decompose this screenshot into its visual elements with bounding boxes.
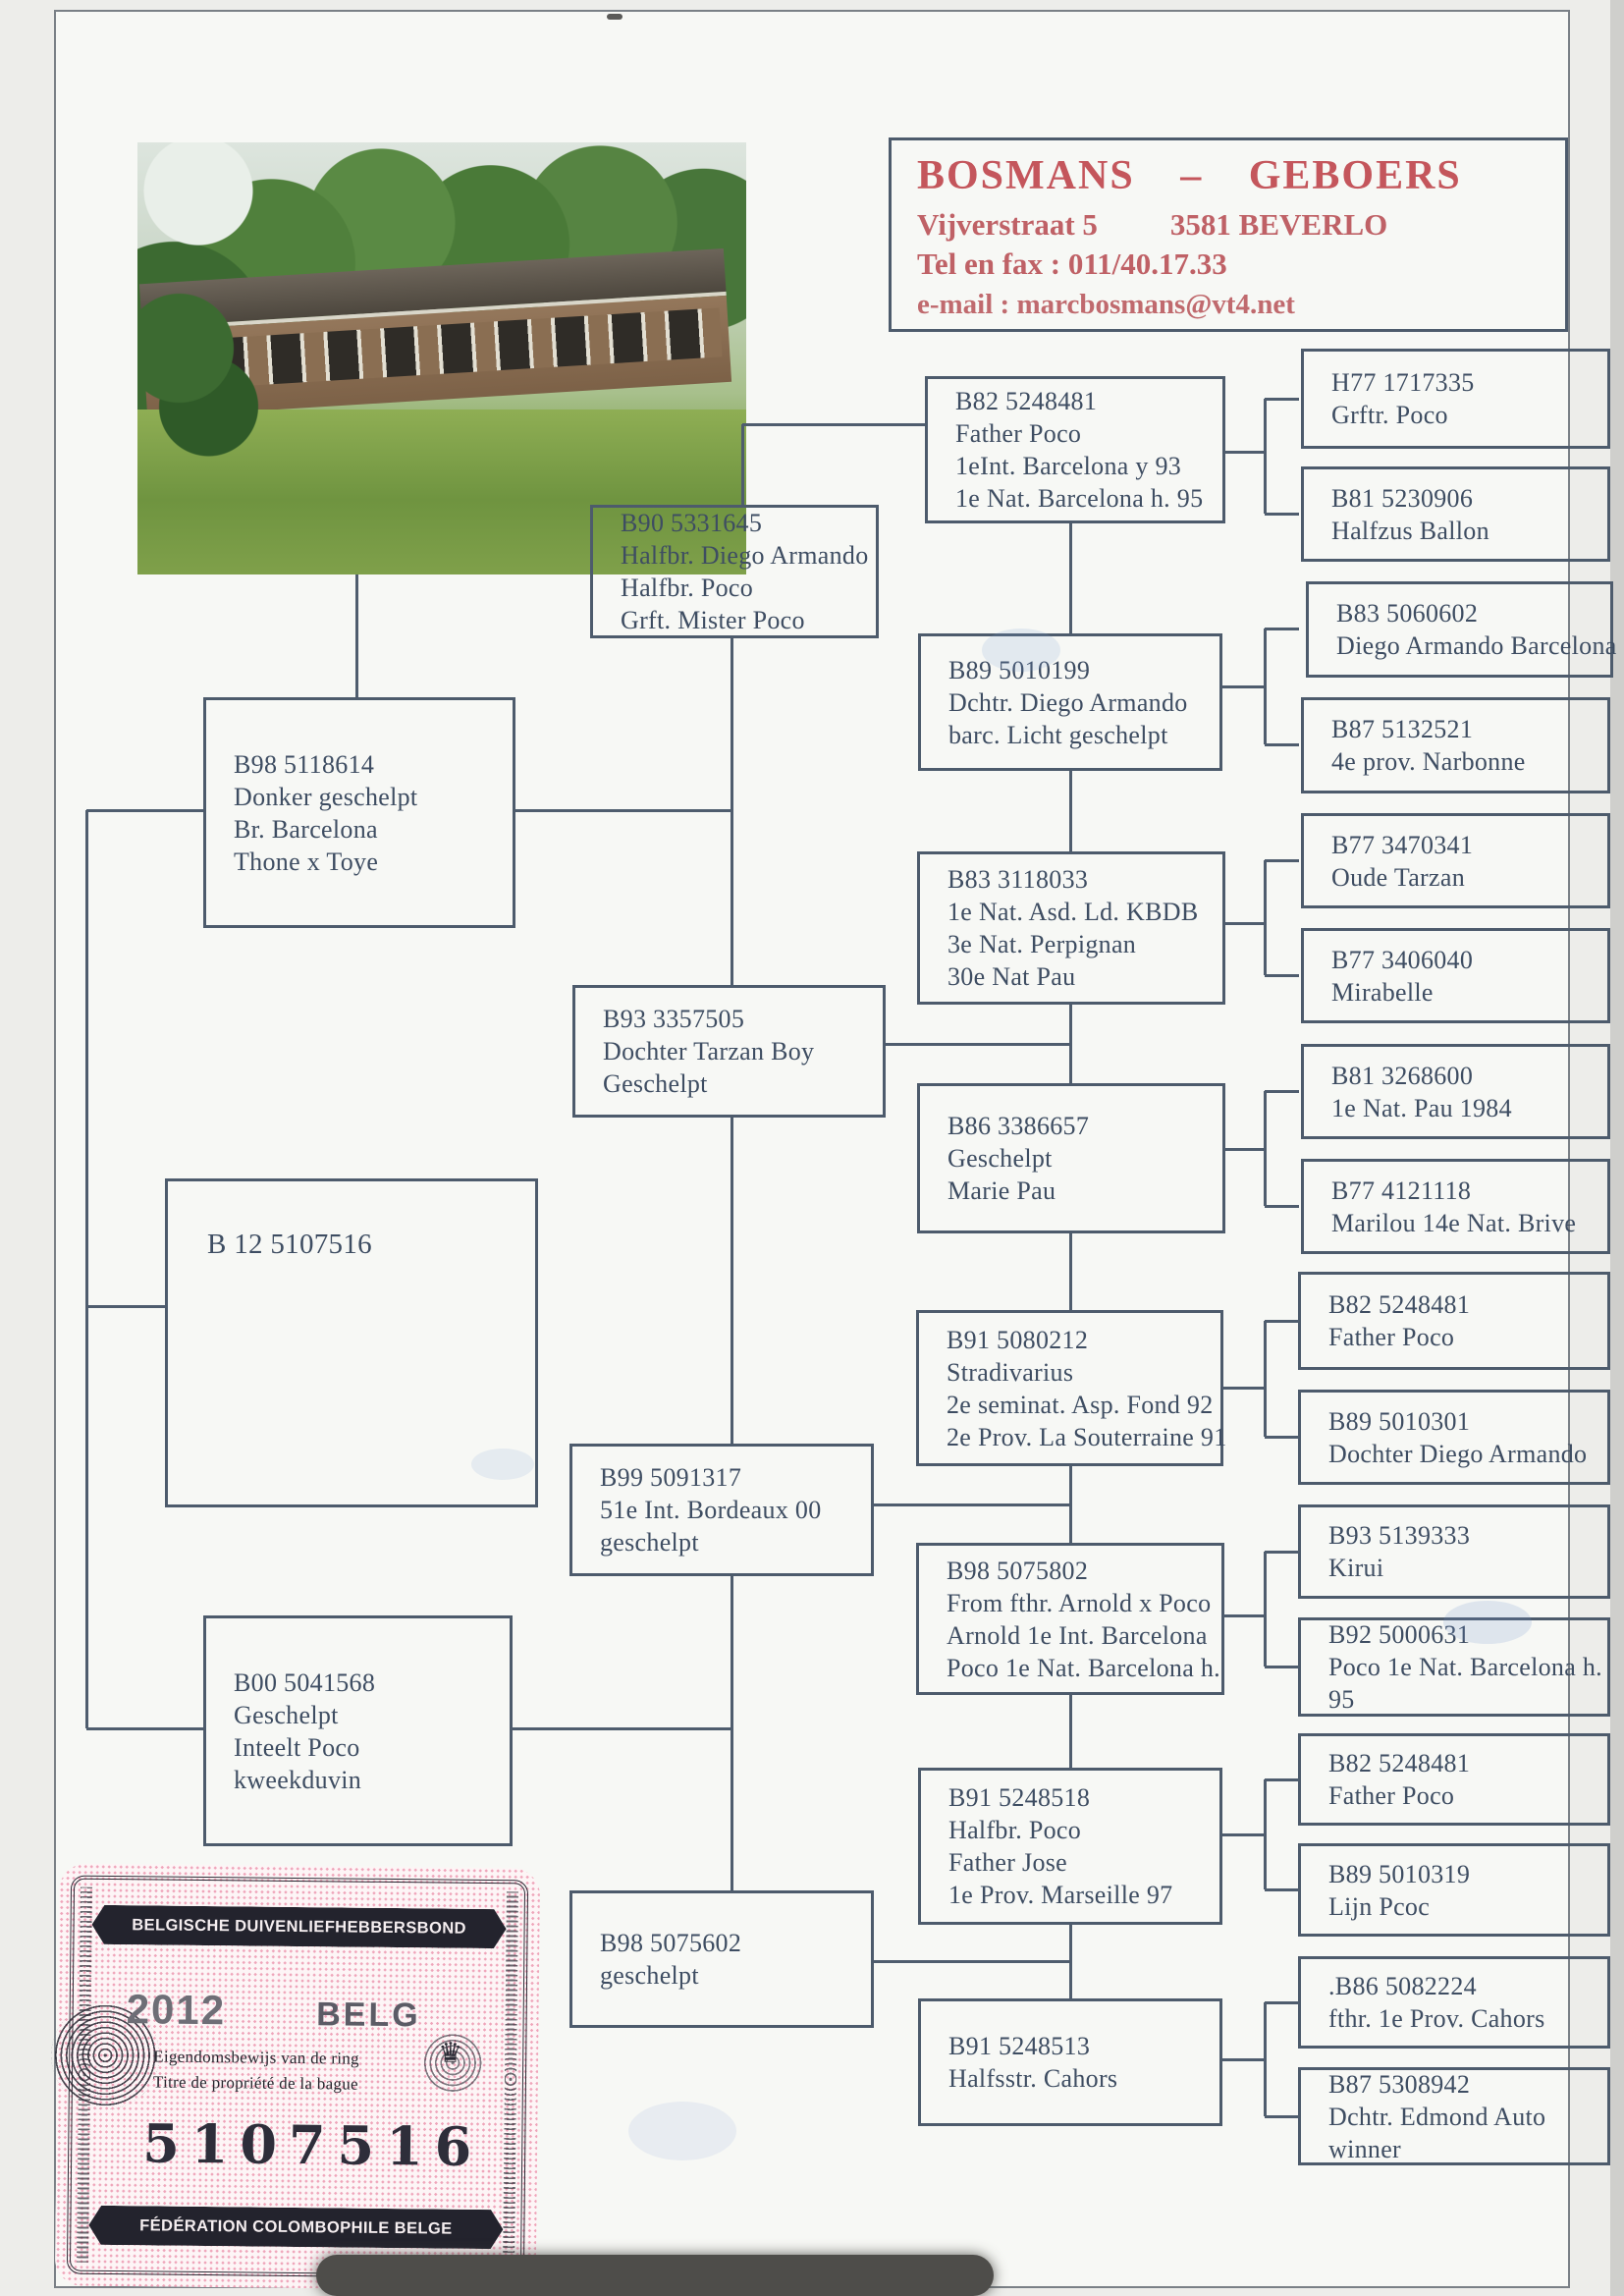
pedigree-box-b83-3118033: B83 31180331e Nat. Asd. Ld. KBDB3e Nat. … [917,851,1225,1005]
connector-line [731,1118,733,1444]
connector-line [1265,1205,1299,1208]
scanner-bed-shadow [316,2255,994,2296]
pedigree-box-b77-4121118: B77 4121118Marilou 14e Nat. Brive [1301,1159,1610,1254]
pedigree-box-line: 95 [1328,1683,1607,1716]
pedigree-box-line: Father Poco [1328,1779,1607,1812]
breeder-header: BOSMANS – GEBOERS Vijverstraat 53581 BEV… [889,137,1568,332]
stamp-line-dutch: Eigendomsbewijs van de ring [153,2047,359,2068]
pedigree-box-line: Marie Pau [947,1175,1222,1207]
pedigree-box-b91-5248518: B91 5248518Halfbr. PocoFather Jose1e Pro… [918,1768,1222,1925]
connector-line [741,424,744,505]
pedigree-box-line: Halfzus Ballon [1331,515,1607,547]
connector-line [1265,743,1299,746]
connector-line [874,1503,1070,1506]
pedigree-box-line: B81 5230906 [1331,482,1607,515]
connector-line [1222,2058,1265,2061]
pedigree-box-line: B89 5010301 [1328,1405,1607,1438]
pedigree-box-line: Thone x Toye [234,846,513,878]
connector-line [85,810,88,1728]
pedigree-box-line: Poco 1e Nat. Barcelona h. [1328,1651,1607,1683]
breeder-name: BOSMANS – GEBOERS [917,152,1565,199]
connector-line [1265,1666,1299,1668]
breeder-phone: Tel en fax : 011/40.17.33 [917,246,1565,282]
pedigree-box-line: Inteelt Poco [234,1731,510,1764]
pedigree-box-line: 3e Nat. Perpignan [947,928,1222,960]
connector-line [1265,628,1299,630]
pedigree-box-line: 1e Nat. Barcelona h. 95 [955,482,1222,515]
connector-line [1265,1090,1299,1093]
pedigree-box-b82-5248481-c: B82 5248481Father Poco [1298,1733,1610,1826]
connector-line [86,809,203,812]
pedigree-box-line: Grftr. Poco [1331,399,1607,431]
pedigree-box-line: Kirui [1328,1552,1607,1584]
breeder-street: Vijverstraat 5 [917,207,1098,242]
pedigree-box-b89-5010199: B89 5010199Dchtr. Diego Armandobarc. Lic… [918,633,1222,771]
pedigree-box-line: From fthr. Arnold x Poco [947,1587,1221,1619]
pedigree-box-b86-5082224: .B86 5082224fthr. 1e Prov. Cahors [1298,1956,1610,2049]
connector-line [1264,1552,1267,1667]
pedigree-box-line: Halfsstr. Cahors [948,2062,1219,2095]
pedigree-box-line: geschelpt [600,1526,871,1558]
connector-line [1264,399,1267,514]
connector-line [1224,922,1265,925]
pedigree-box-line: Geschelpt [947,1142,1222,1175]
connector-line [1265,513,1299,516]
pedigree-box-b93-5139333: B93 5139333Kirui [1298,1504,1610,1599]
stamp-bottom-banner-text: FÉDÉRATION COLOMBOPHILE BELGE [139,2216,453,2238]
pedigree-box-b92-5000631: B92 5000631Poco 1e Nat. Barcelona h.95 [1298,1617,1610,1717]
breeder-address: Vijverstraat 53581 BEVERLO [917,207,1565,243]
connector-line [1265,1320,1299,1323]
ownership-stamp: BELGISCHE DUIVENLIEFHEBBERSBOND 2012 BEL… [55,1863,540,2290]
connector-line [1265,974,1299,977]
pedigree-box-line: B83 5060602 [1336,597,1610,629]
pedigree-box-b82-5248481-b: B82 5248481Father Poco [1298,1272,1610,1370]
pedigree-box-line: 1e Nat. Pau 1984 [1331,1092,1607,1124]
pedigree-box-line: Father Poco [955,417,1222,450]
pedigree-box-line: geschelpt [600,1959,871,1992]
connector-line [1224,1148,1265,1151]
pedigree-box-line: B91 5080212 [947,1324,1220,1356]
pedigree-box-line: B98 5118614 [234,748,513,781]
stamp-bottom-banner: FÉDÉRATION COLOMBOPHILE BELGE [88,2206,503,2249]
connector-line [355,574,358,697]
pedigree-box-line: 2e Prov. La Souterraine 91 [947,1421,1220,1453]
connector-line [1265,859,1299,862]
pedigree-box-line: B87 5132521 [1331,713,1607,745]
pedigree-box-b81-3268600: B81 32686001e Nat. Pau 1984 [1301,1044,1610,1139]
pedigree-box-b98-5075602: B98 5075602geschelpt [569,1890,874,2028]
pedigree-box-line: Dochter Diego Armando [1328,1438,1607,1470]
connector-line [1069,1695,1072,1768]
stamp-top-banner: BELGISCHE DUIVENLIEFHEBBERSBOND [91,1905,506,1948]
connector-line [1264,860,1267,975]
pedigree-box-line: 30e Nat Pau [947,960,1222,993]
breeder-email: e-mail : marcbosmans@vt4.net [917,289,1565,321]
pedigree-box-line: B93 3357505 [603,1003,883,1035]
connector-line [1069,523,1072,633]
pedigree-box-line: B77 3406040 [1331,944,1607,976]
pedigree-box-b89-5010301: B89 5010301Dochter Diego Armando [1298,1390,1610,1485]
pedigree-box-line: B87 5308942 [1328,2068,1607,2101]
pedigree-box-line: B82 5248481 [1328,1288,1607,1321]
pedigree-box-line: B89 5010319 [1328,1858,1607,1890]
scan-edge-shadow [1610,0,1624,2296]
pedigree-box-line: B92 5000631 [1328,1618,1607,1651]
pedigree-box-b81-5230906: B81 5230906Halfzus Ballon [1301,466,1610,562]
pedigree-box-line: Br. Barcelona [234,813,513,846]
pedigree-box-line: B98 5075602 [600,1927,871,1959]
connector-line [86,1727,203,1730]
stamp-country: BELG [316,1995,421,2035]
pedigree-box-b98-5075802: B98 5075802From fthr. Arnold x PocoArnol… [916,1543,1224,1695]
pedigree-box-b91-5080212: B91 5080212Stradivarius2e seminat. Asp. … [916,1310,1223,1466]
pedigree-box-b77-3470341: B77 3470341Oude Tarzan [1301,813,1610,908]
pedigree-box-line: B91 5248518 [948,1781,1219,1814]
connector-line [1224,451,1265,454]
connector-line [742,423,925,426]
pedigree-box-b98-5118614: B98 5118614Donker geschelptBr. Barcelona… [203,697,515,928]
pedigree-box-h77-1717335: H77 1717335Grftr. Poco [1301,349,1610,449]
connector-line [1223,1614,1265,1617]
pedigree-box-line: Father Jose [948,1846,1219,1879]
pedigree-box-line: Dochter Tarzan Boy [603,1035,883,1067]
breeder-city: 3581 BEVERLO [1170,207,1387,242]
pedigree-box-b82-5248481-sire: B82 5248481Father Poco1eInt. Barcelona y… [925,376,1225,523]
connector-line [731,1576,733,1890]
pedigree-box-line: B99 5091317 [600,1461,871,1494]
pedigree-box-line: B 12 5107516 [207,1229,535,1261]
pedigree-box-line: Lijn Pcoc [1328,1890,1607,1923]
pedigree-box-line: 4e prov. Narbonne [1331,745,1607,778]
pedigree-box-line: kweekduvin [234,1764,510,1796]
pedigree-box-line: 51e Int. Bordeaux 00 [600,1494,871,1526]
pedigree-box-line: B93 5139333 [1328,1519,1607,1552]
pedigree-box-line: Dchtr. Edmond Auto [1328,2101,1607,2133]
pedigree-box-line: 1e Prov. Marseille 97 [948,1879,1219,1911]
connector-line [874,1960,1070,1963]
pedigree-box-line: B00 5041568 [234,1667,510,1699]
pedigree-box-line: B81 3268600 [1331,1060,1607,1092]
pedigree-box-b00-5041568: B00 5041568GeschelptInteelt Pocokweekduv… [203,1615,513,1846]
pedigree-box-line: Oude Tarzan [1331,861,1607,894]
pedigree-box-line: Father Poco [1328,1321,1607,1353]
connector-line [1265,2115,1299,2118]
pedigree-box-line: Poco 1e Nat. Barcelona h. [947,1652,1221,1684]
connector-line [1222,1833,1265,1836]
connector-line [1265,1551,1299,1554]
pedigree-box-line: Mirabelle [1331,976,1607,1009]
pedigree-box-line: Halfbr. Poco [621,572,876,604]
connector-line [1222,685,1265,688]
pedigree-box-b12-5107516: B 12 5107516 [165,1178,538,1507]
scanned-pedigree-page: { "header": { "name": "BOSMANS – GEBOERS… [0,0,1624,2296]
pedigree-box-line: fthr. 1e Prov. Cahors [1328,2002,1607,2035]
connector-line [1265,398,1299,401]
pedigree-box-line: B82 5248481 [1328,1747,1607,1779]
pedigree-box-line: barc. Licht geschelpt [948,719,1219,751]
pedigree-box-b93-3357505: B93 3357505Dochter Tarzan BoyGeschelpt [572,985,886,1118]
pedigree-box-b91-5248513: B91 5248513Halfsstr. Cahors [918,1998,1222,2126]
pedigree-box-b90-5331645: B90 5331645Halfbr. Diego ArmandoHalfbr. … [590,505,879,638]
pedigree-box-line: Halfbr. Diego Armando [621,539,876,572]
ring-number: 5107516 [142,2111,484,2178]
connector-line [515,809,731,812]
pedigree-box-line: B90 5331645 [621,507,876,539]
pedigree-box-b87-5132521: B87 51325214e prov. Narbonne [1301,697,1610,793]
pedigree-box-line: Donker geschelpt [234,781,513,813]
pedigree-box-line: 2e seminat. Asp. Fond 92 [947,1389,1220,1421]
pedigree-box-line: B98 5075802 [947,1555,1221,1587]
pedigree-box-line: H77 1717335 [1331,366,1607,399]
pedigree-box-line: 1eInt. Barcelona y 93 [955,450,1222,482]
pedigree-box-line: Diego Armando Barcelona [1336,629,1610,662]
connector-line [886,1043,1070,1046]
pedigree-box-line: B89 5010199 [948,654,1219,686]
stamp-line-french: Titre de propriété de la bague [153,2072,358,2094]
pedigree-box-line: .B86 5082224 [1328,1970,1607,2002]
connector-line [1265,1436,1299,1439]
pedigree-box-b86-3386657: B86 3386657GeschelptMarie Pau [917,1083,1225,1233]
pedigree-box-line: 1e Nat. Asd. Ld. KBDB [947,896,1222,928]
connector-line [1222,1387,1265,1390]
pedigree-box-line: B91 5248513 [948,2030,1219,2062]
connector-line [1069,771,1072,851]
pedigree-box-line: Geschelpt [603,1067,883,1100]
connector-line [86,1305,165,1308]
pedigree-box-line: B77 4121118 [1331,1175,1607,1207]
stamp-year: 2012 [126,1986,226,2034]
pedigree-box-line: B77 3470341 [1331,829,1607,861]
pedigree-box-b99-5091317: B99 509131751e Int. Bordeaux 00geschelpt [569,1444,874,1576]
connector-line [1265,1778,1299,1781]
pedigree-box-line: Grft. Mister Poco [621,604,876,636]
connector-line [1264,1321,1267,1437]
connector-line [1265,1888,1299,1891]
pedigree-box-line: Halfbr. Poco [948,1814,1219,1846]
pedigree-box-b89-5010319: B89 5010319Lijn Pcoc [1298,1843,1610,1937]
crown-icon: ♛ [438,2036,462,2069]
connector-line [1069,1233,1072,1310]
connector-line [511,1727,731,1730]
stamp-top-banner-text: BELGISCHE DUIVENLIEFHEBBERSBOND [132,1916,466,1939]
bush-graphic [137,290,275,457]
pedigree-box-line: Marilou 14e Nat. Brive [1331,1207,1607,1239]
stamp-year-row: 2012 BELG [126,1986,420,2036]
scan-artifact-mark [607,14,623,20]
pedigree-box-line: B86 3386657 [947,1110,1222,1142]
pedigree-box-b77-3406040: B77 3406040Mirabelle [1301,928,1610,1023]
pedigree-box-line: Dchtr. Diego Armando [948,686,1219,719]
pedigree-box-line: Stradivarius [947,1356,1220,1389]
pedigree-box-line: B83 3118033 [947,863,1222,896]
pedigree-box-line: Arnold 1e Int. Barcelona [947,1619,1221,1652]
pedigree-box-line: B82 5248481 [955,385,1222,417]
pedigree-box-line: Geschelpt [234,1699,510,1731]
pedigree-box-b83-5060602: B83 5060602Diego Armando Barcelona [1306,581,1613,678]
connector-line [1265,2001,1299,2004]
pedigree-box-line: winner [1328,2133,1607,2165]
pedigree-box-b87-5308942: B87 5308942Dchtr. Edmond Autowinner [1298,2067,1610,2165]
